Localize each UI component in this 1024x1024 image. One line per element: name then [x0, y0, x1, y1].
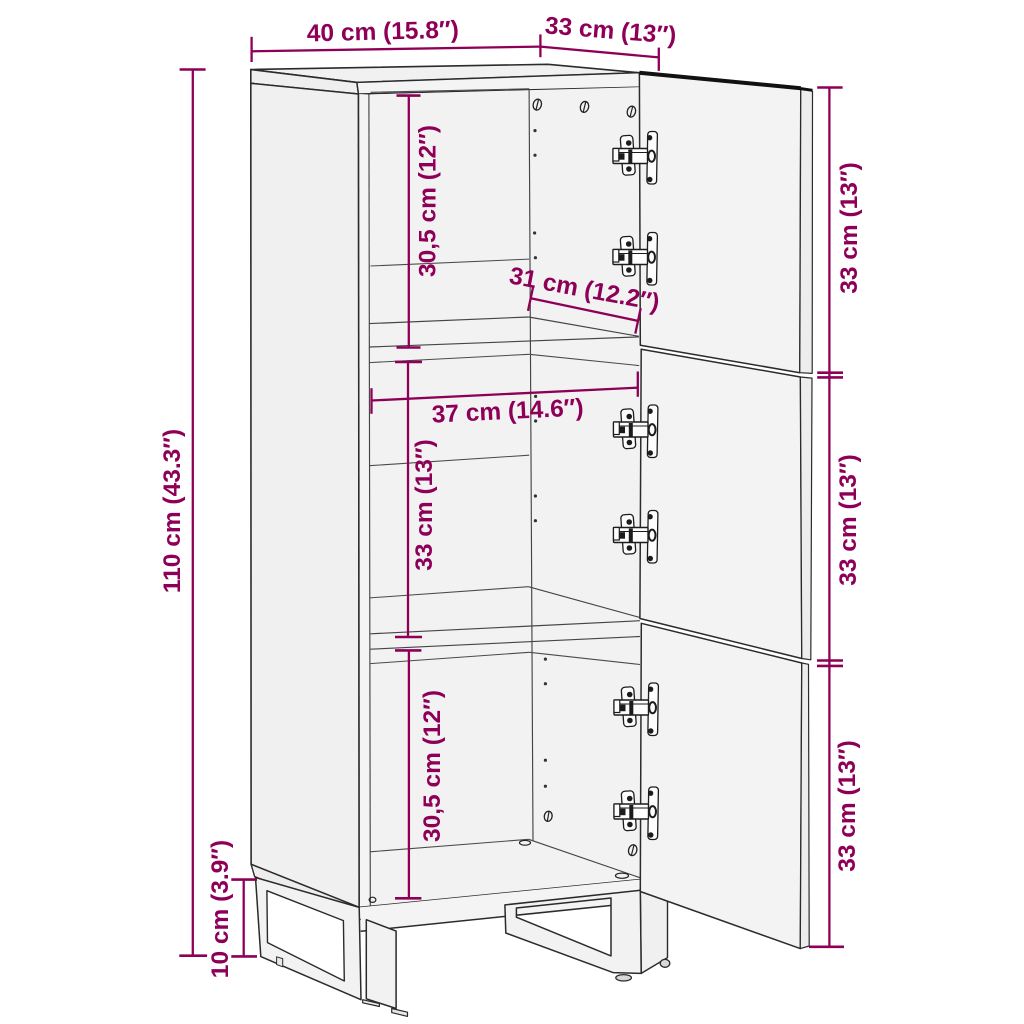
svg-text:40 cm (15.8″): 40 cm (15.8″) — [306, 17, 459, 48]
svg-text:10 cm (3.9″): 10 cm (3.9″) — [207, 840, 234, 978]
svg-text:110 cm (43.3″): 110 cm (43.3″) — [159, 429, 186, 593]
svg-text:30,5 cm (12″): 30,5 cm (12″) — [415, 125, 442, 277]
svg-text:33 cm (13″): 33 cm (13″) — [835, 454, 862, 586]
svg-text:33 cm (13″): 33 cm (13″) — [834, 740, 861, 872]
svg-text:30,5 cm (12″): 30,5 cm (12″) — [419, 690, 446, 842]
svg-text:33 cm (13″): 33 cm (13″) — [411, 439, 438, 571]
svg-text:33 cm (13″): 33 cm (13″) — [836, 162, 863, 294]
